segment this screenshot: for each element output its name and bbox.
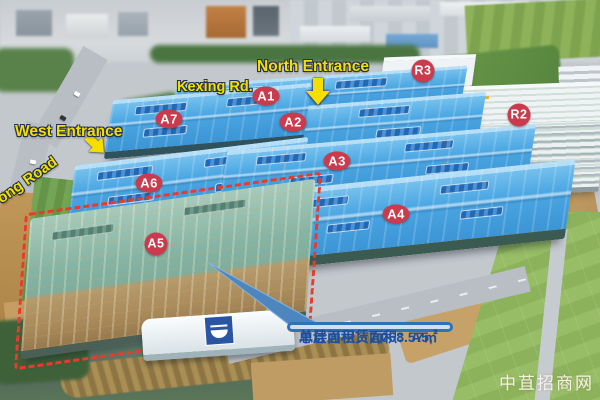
aerial-photo: 单层可租赁面积：A5, 总计面积：7,068.57㎡ North Entranc…	[0, 0, 600, 400]
west-entrance-label: West Entrance	[15, 123, 122, 141]
building-label-a4: A4	[383, 205, 410, 224]
building-label-a2: A2	[280, 113, 307, 132]
building-label-a7: A7	[156, 110, 183, 129]
north-entrance-arrow-icon	[306, 78, 330, 106]
building-label-a6: A6	[136, 174, 163, 193]
building-label-a3: A3	[324, 152, 351, 171]
building-label-r3: R3	[412, 60, 435, 83]
callout-line2: 总计面积：7,068.57㎡	[299, 327, 438, 348]
north-entrance-label: North Entrance	[257, 58, 369, 76]
building-label-r2: R2	[508, 104, 531, 127]
kexing-road-label: Kexing Rd.	[177, 79, 253, 95]
watermark: 中苴招商网	[499, 369, 594, 394]
building-label-a1: A1	[253, 87, 280, 106]
building-label-a5: A5	[145, 233, 168, 256]
callout-box: 单层可租赁面积：A5, 总计面积：7,068.57㎡	[287, 322, 453, 332]
